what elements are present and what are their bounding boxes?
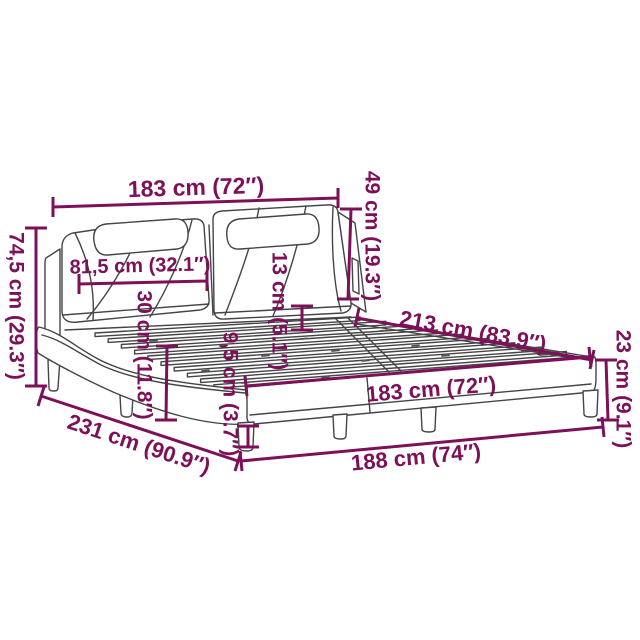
dimension-label-cushion-width: 81,5 cm (32.1″) bbox=[69, 253, 210, 278]
diagram-stage: 183 cm (72″) 49 cm (19.3″) 74,5 cm (29.3… bbox=[0, 0, 640, 640]
leg-foot-end bbox=[583, 390, 598, 417]
leg-front-mid-1 bbox=[333, 414, 347, 439]
dimension-label-headboard-height: 49 cm (19.3″) bbox=[361, 171, 384, 301]
dimension-label-leg-height: 9,5 cm (3.7″) bbox=[219, 332, 242, 456]
dimension-label-cushion-thickness: 13 cm (5.1″) bbox=[268, 252, 291, 371]
dimension-label-total-height: 74,5 cm (29.3″) bbox=[5, 232, 28, 380]
dimension-label-total-width: 188 cm (74″) bbox=[350, 438, 482, 475]
dimension-label-headboard-width: 183 cm (72″) bbox=[127, 172, 264, 202]
leg-front-mid-2 bbox=[421, 407, 436, 432]
bed-frame-diagram: 183 cm (72″) 49 cm (19.3″) 74,5 cm (29.3… bbox=[0, 0, 640, 640]
pillow-right bbox=[227, 214, 319, 249]
dimension-label-headrest-drop: 30 cm (11.8″) bbox=[133, 290, 156, 419]
pillow-left bbox=[94, 219, 188, 255]
dimension-label-frame-height: 23 cm (9.1″) bbox=[612, 330, 635, 449]
